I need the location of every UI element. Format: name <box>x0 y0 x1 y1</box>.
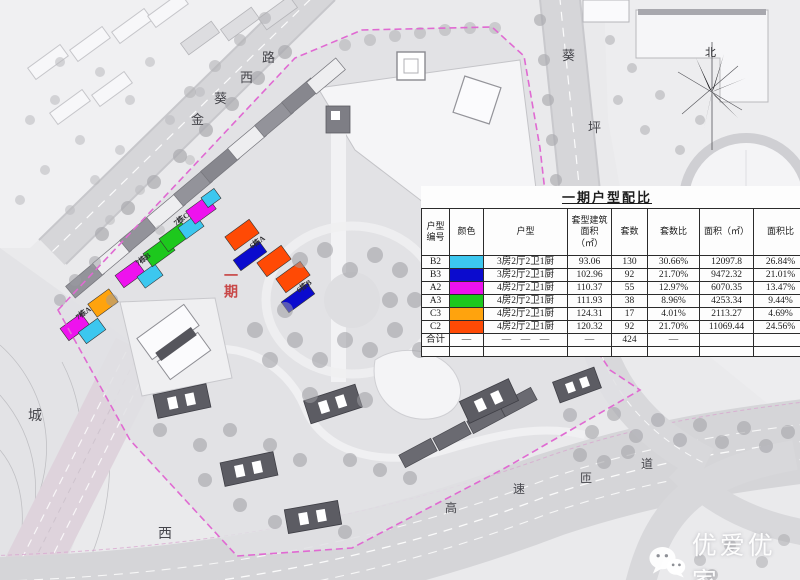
cell-area: 11069.44 <box>700 321 754 334</box>
cell-area: 9472.32 <box>700 269 754 282</box>
cell-area: 4253.34 <box>700 295 754 308</box>
cell-code: A3 <box>422 295 450 308</box>
cell-unit-area: 124.31 <box>568 308 612 321</box>
cell-blank <box>754 347 800 357</box>
cell-type: 4房2厅2卫1厨 <box>484 295 568 308</box>
road-char-xi2: 西 <box>158 527 172 542</box>
phase-1-label: 一期 <box>219 268 239 300</box>
court-building <box>397 52 425 80</box>
cell-count: 92 <box>612 269 648 282</box>
table-row: C3 4房2厅2卫1厨 124.31 17 4.01% 2113.27 4.69… <box>422 308 800 321</box>
cell-color-swatch <box>450 282 484 295</box>
cell-type: 3房2厅2卫1厨 <box>484 256 568 269</box>
cell-count: 92 <box>612 321 648 334</box>
cell-area-pct: 4.69% <box>754 308 800 321</box>
cell-code: A2 <box>422 282 450 295</box>
cell-blank <box>700 347 754 357</box>
cell-blank <box>422 347 450 357</box>
cell-count-pct: 8.96% <box>648 295 700 308</box>
north-label: 北 <box>705 46 716 59</box>
cell-total-label: 合计 <box>422 334 450 347</box>
watermark-text: 优爱优家 <box>692 526 800 580</box>
cell-area-pct: 9.44% <box>754 295 800 308</box>
table-row: B2 3房2厅2卫1厨 93.06 130 30.66% 12097.8 26.… <box>422 256 800 269</box>
cell-count-pct: 30.66% <box>648 256 700 269</box>
cell-area-pct: 26.84% <box>754 256 800 269</box>
table-title: 一期户型配比 <box>421 186 793 208</box>
road-char-gao: 高 <box>445 500 457 515</box>
cell-count: 130 <box>612 256 648 269</box>
cell-blank <box>648 347 700 357</box>
cell-blank <box>612 347 648 357</box>
central-court <box>324 272 380 328</box>
cell-code: C2 <box>422 321 450 334</box>
table-header-row: 户型 编号 颜色 户型 套型建筑 面积 （㎡） 套数 套数比 面积（㎡） 面积比 <box>422 209 800 256</box>
cell-count-pct: 12.97% <box>648 282 700 295</box>
road-char-za: 匝 <box>580 471 592 485</box>
cell-unit-area: 110.37 <box>568 282 612 295</box>
cell-area: 2113.27 <box>700 308 754 321</box>
cell-count: 17 <box>612 308 648 321</box>
cell-color-swatch <box>450 308 484 321</box>
road-char-su: 速 <box>513 482 525 496</box>
road-char-kui: 葵 <box>214 91 227 106</box>
table-row: C2 4房2厅2卫1厨 120.32 92 21.70% 11069.44 24… <box>422 321 800 334</box>
cell-unit-area: 120.32 <box>568 321 612 334</box>
cell-type: 4房2厅2卫1厨 <box>484 321 568 334</box>
cell-unit-area: 93.06 <box>568 256 612 269</box>
road-char-cheng: 城 <box>28 408 42 424</box>
col-header-area: 面积（㎡） <box>700 209 754 256</box>
table-row: A2 4房2厅2卫1厨 110.37 55 12.97% 6070.35 13.… <box>422 282 800 295</box>
road-char-dao: 道 <box>641 457 653 471</box>
cell-total-unit-area: — <box>568 334 612 347</box>
cell-total-type: — — — <box>484 334 568 347</box>
cell-total-area-pct <box>754 334 800 347</box>
table-row: A3 4房2厅2卫1厨 111.93 38 8.96% 4253.34 9.44… <box>422 295 800 308</box>
cell-color-swatch <box>450 321 484 334</box>
col-header-code: 户型 编号 <box>422 209 450 256</box>
cell-area-pct: 13.47% <box>754 282 800 295</box>
road-char-lu: 路 <box>262 50 275 65</box>
cell-type: 3房2厅2卫1厨 <box>484 269 568 282</box>
col-header-type: 户型 <box>484 209 568 256</box>
cell-area-pct: 21.01% <box>754 269 800 282</box>
small-building-top <box>583 0 629 22</box>
site-plan-page: 7栋A 7栋B 7栋C 6栋A 6栋B 金 葵 西 路 葵 坪 城 西 高 速 … <box>0 0 800 580</box>
road-char-jin: 金 <box>191 112 204 127</box>
cell-blank <box>450 347 484 357</box>
road-char-kui2: 葵 <box>562 48 575 63</box>
cell-unit-area: 111.93 <box>568 295 612 308</box>
cell-unit-area: 102.96 <box>568 269 612 282</box>
cell-color-swatch <box>450 295 484 308</box>
cell-count: 55 <box>612 282 648 295</box>
cell-total-count: 424 <box>612 334 648 347</box>
watermark: 优爱优家 <box>648 526 800 580</box>
cell-count-pct: 21.70% <box>648 321 700 334</box>
table-row: B3 3房2厅2卫1厨 102.96 92 21.70% 9472.32 21.… <box>422 269 800 282</box>
unit-mix-table: 户型 编号 颜色 户型 套型建筑 面积 （㎡） 套数 套数比 面积（㎡） 面积比… <box>421 208 800 357</box>
cell-code: C3 <box>422 308 450 321</box>
cell-count-pct: 21.70% <box>648 269 700 282</box>
col-header-count: 套数 <box>612 209 648 256</box>
col-header-color: 颜色 <box>450 209 484 256</box>
col-header-count-pct: 套数比 <box>648 209 700 256</box>
table-blank-row <box>422 347 800 357</box>
cell-area-pct: 24.56% <box>754 321 800 334</box>
road-char-ping: 坪 <box>588 120 601 135</box>
cell-color-swatch <box>450 256 484 269</box>
cell-count-pct: 4.01% <box>648 308 700 321</box>
cell-count: 38 <box>612 295 648 308</box>
cell-total-color: — <box>450 334 484 347</box>
cell-total-count-pct: — <box>648 334 700 347</box>
cell-type: 4房2厅2卫1厨 <box>484 282 568 295</box>
unit-mix-table-panel: 一期户型配比 户型 编号 颜色 户型 套型建筑 面积 （㎡） 套数 套数比 面积… <box>421 186 800 357</box>
wechat-logo-icon <box>648 544 687 580</box>
cell-type: 4房2厅2卫1厨 <box>484 308 568 321</box>
cell-blank <box>568 347 612 357</box>
cell-color-swatch <box>450 269 484 282</box>
cell-code: B3 <box>422 269 450 282</box>
road-char-xi: 西 <box>240 70 253 85</box>
cell-code: B2 <box>422 256 450 269</box>
cell-area: 6070.35 <box>700 282 754 295</box>
cell-total-area <box>700 334 754 347</box>
col-header-unit-area: 套型建筑 面积 （㎡） <box>568 209 612 256</box>
col-header-area-pct: 面积比 <box>754 209 800 256</box>
cell-area: 12097.8 <box>700 256 754 269</box>
table-total-row: 合计 — — — — — 424 — <box>422 334 800 347</box>
cell-blank <box>484 347 568 357</box>
